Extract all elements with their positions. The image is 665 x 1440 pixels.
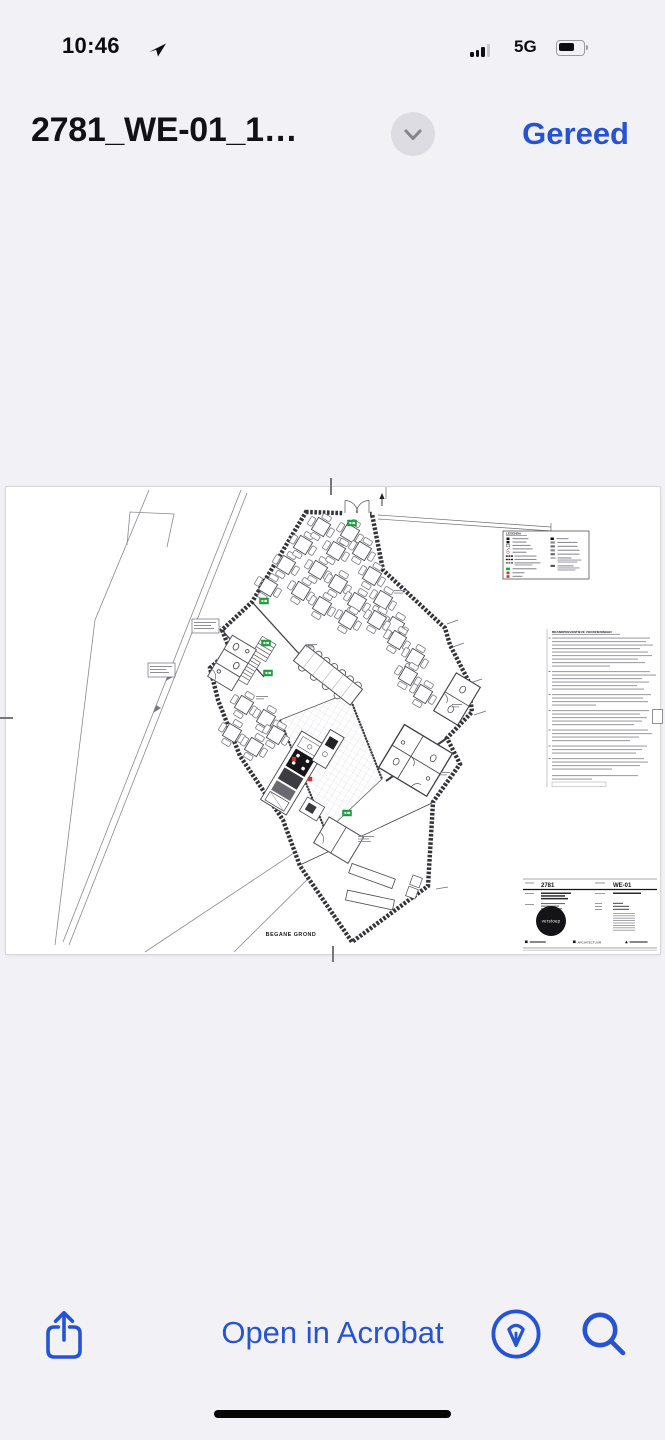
search-icon [578,1308,630,1360]
location-arrow-icon [148,39,168,59]
cellular-signal-icon [470,42,490,57]
floor-label: BEGANE GROND [266,932,317,938]
search-button[interactable] [578,1308,630,1360]
project-number: 2781 [541,883,555,889]
pdf-page[interactable]: LEGENDA BRANDPREVENTIEVE VOORZ [6,487,660,954]
floor-plan-drawing: LEGENDA BRANDPREVENTIEVE VOORZ [6,487,660,954]
legend: LEGENDA [503,531,589,579]
notes-heading: BRANDPREVENTIEVE VOORZIENINGEN [552,630,612,634]
done-button[interactable]: Gereed [522,116,629,152]
title-menu-button[interactable] [391,112,435,156]
pdf-canvas[interactable]: LEGENDA BRANDPREVENTIEVE VOORZ [0,180,665,1280]
notes-block: BRANDPREVENTIEVE VOORZIENINGEN [547,629,656,787]
open-in-acrobat-button[interactable]: Open in Acrobat [0,1315,665,1351]
markup-button[interactable] [489,1307,543,1361]
north-arrow-icon [379,493,384,506]
fold-mark-top [330,478,332,495]
document-title: 2781_WE-01_1… [31,111,297,150]
network-type: 5G [514,37,537,57]
chevron-down-icon [401,122,425,146]
clock: 10:46 [62,33,120,59]
architect-logo-text: verstoep [542,919,561,924]
titleblock: 2781 WE-01 verstoep ARCHITECTUUR [523,879,657,951]
battery-icon [556,40,585,56]
discipline-label: ARCHITECTUUR [578,941,602,945]
markup-icon [489,1307,543,1361]
fold-mark-right [652,709,663,724]
fold-mark-left [0,717,13,719]
home-indicator[interactable] [214,1410,451,1418]
fold-mark-bottom [332,946,334,962]
battery-cap [586,45,588,50]
sheet-code: WE-01 [613,883,632,889]
legend-title: LEGENDA [506,532,522,536]
